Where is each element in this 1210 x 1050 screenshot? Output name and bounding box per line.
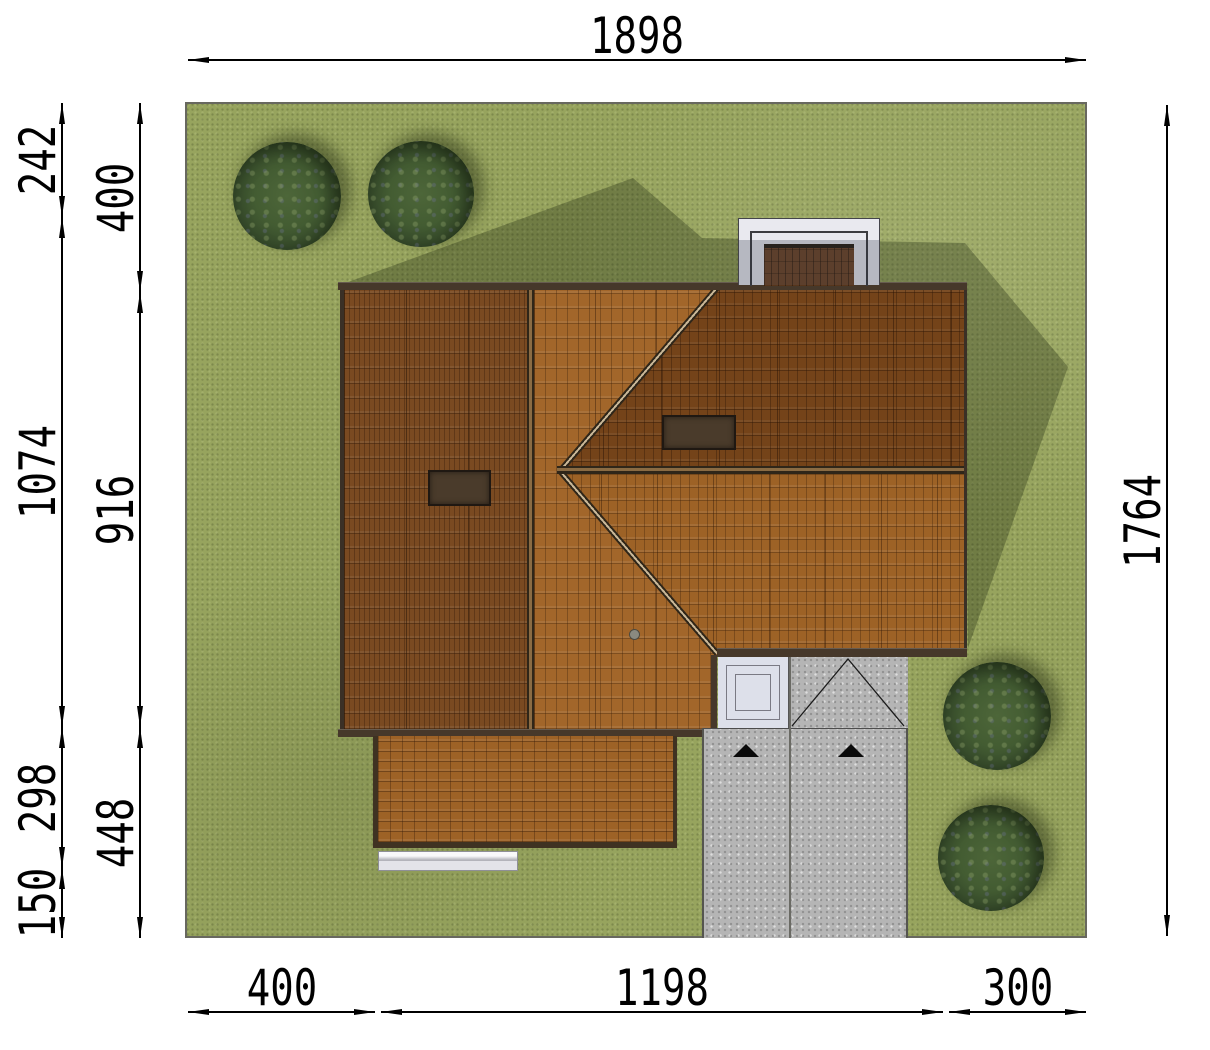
garage-entry-arrow bbox=[733, 744, 759, 757]
porch-shadow-overlay bbox=[739, 240, 879, 285]
dimension-label: 1898 bbox=[590, 11, 684, 61]
plot-area bbox=[185, 102, 1087, 938]
entrance-porch bbox=[738, 218, 880, 285]
driveway bbox=[702, 728, 908, 938]
tree bbox=[938, 805, 1044, 911]
driveway-divider-line bbox=[789, 657, 791, 938]
dimension-arrow bbox=[381, 1009, 402, 1015]
dimension-label: 448 bbox=[91, 797, 141, 867]
entrance-walkway bbox=[718, 657, 790, 728]
terrace bbox=[378, 851, 518, 871]
dimension-arrow bbox=[137, 727, 143, 748]
skylight bbox=[428, 470, 491, 506]
dimension-label: 298 bbox=[13, 762, 63, 832]
dimension-arrow bbox=[354, 1009, 375, 1015]
dimension-arrow bbox=[137, 292, 143, 313]
garage-roof bbox=[373, 736, 677, 848]
dimension-arrow bbox=[59, 217, 65, 238]
garage-entry-arrow bbox=[838, 744, 864, 757]
dimension-label: 400 bbox=[246, 963, 316, 1013]
dimension-label: 400 bbox=[91, 162, 141, 232]
dimension-label: 150 bbox=[13, 868, 63, 938]
dimension-arrow bbox=[188, 57, 209, 63]
dimension-arrow bbox=[137, 706, 143, 727]
tree bbox=[943, 662, 1051, 770]
roof-ridge-vertical bbox=[527, 284, 534, 736]
dimension-arrow bbox=[59, 727, 65, 748]
dimension-arrow bbox=[949, 1009, 970, 1015]
dimension-arrow bbox=[188, 1009, 209, 1015]
dimension-arrow bbox=[59, 103, 65, 124]
tree bbox=[368, 141, 474, 247]
roof-section-right bbox=[545, 287, 967, 657]
dimension-arrow bbox=[59, 847, 65, 868]
dimension-arrow bbox=[922, 1009, 943, 1015]
dimension-arrow bbox=[1164, 915, 1170, 936]
dimension-arrow bbox=[1065, 1009, 1086, 1015]
garage-gable-marking bbox=[790, 657, 908, 728]
roof-section-left bbox=[340, 287, 531, 729]
eave-bottom-right bbox=[717, 648, 967, 657]
dimension-arrow bbox=[1065, 57, 1086, 63]
dimension-arrow bbox=[137, 917, 143, 938]
dimension-arrow bbox=[1164, 105, 1170, 126]
driveway-apron bbox=[790, 657, 908, 728]
site-plan-canvas: 1898400119830024210742981504009164481764 bbox=[0, 0, 1210, 1050]
dimension-label: 1074 bbox=[13, 425, 63, 519]
roof-vent bbox=[629, 629, 640, 640]
dimension-label: 242 bbox=[13, 125, 63, 195]
dimension-arrow bbox=[137, 271, 143, 292]
eave-edge-middle bbox=[711, 655, 717, 729]
dimension-arrow bbox=[59, 196, 65, 217]
tree bbox=[233, 142, 341, 250]
roof-edge-right bbox=[964, 287, 967, 652]
dimension-label: 916 bbox=[91, 474, 141, 544]
dimension-arrow bbox=[137, 103, 143, 124]
dimension-arrow bbox=[59, 706, 65, 727]
dimension-label: 1198 bbox=[615, 963, 709, 1013]
skylight bbox=[662, 415, 736, 450]
roof-ridge-horizontal bbox=[557, 466, 967, 474]
dimension-label: 1764 bbox=[1118, 474, 1168, 568]
dimension-label: 300 bbox=[982, 963, 1052, 1013]
